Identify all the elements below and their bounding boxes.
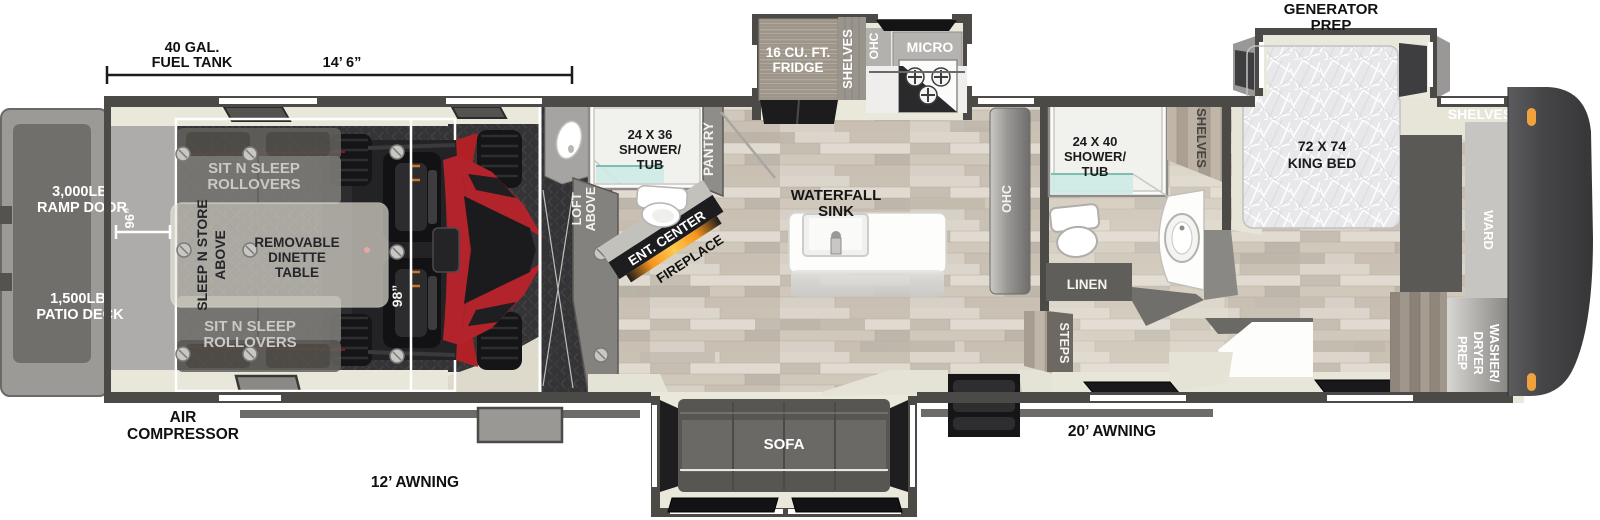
svg-text:ABOVE: ABOVE bbox=[584, 187, 598, 231]
svg-text:98”: 98” bbox=[389, 285, 405, 308]
svg-text:TABLE: TABLE bbox=[275, 265, 319, 280]
svg-text:DINETTE: DINETTE bbox=[268, 250, 326, 265]
svg-text:40 GAL.: 40 GAL. bbox=[165, 40, 220, 56]
svg-text:FRIDGE: FRIDGE bbox=[772, 60, 823, 75]
svg-text:FUEL TANK: FUEL TANK bbox=[152, 55, 233, 71]
svg-text:24 X 40: 24 X 40 bbox=[1073, 134, 1118, 149]
svg-text:SHOWER/: SHOWER/ bbox=[1064, 149, 1127, 164]
svg-text:SIT N SLEEP: SIT N SLEEP bbox=[204, 318, 296, 335]
svg-text:14’ 6”: 14’ 6” bbox=[323, 55, 362, 71]
svg-text:MICRO: MICRO bbox=[907, 39, 954, 55]
svg-text:24 X 36: 24 X 36 bbox=[628, 127, 673, 142]
svg-text:RAMP DOOR: RAMP DOOR bbox=[37, 200, 127, 216]
svg-text:SHOWER/: SHOWER/ bbox=[619, 142, 682, 157]
svg-text:STEPS: STEPS bbox=[1057, 323, 1071, 364]
svg-text:COMPRESSOR: COMPRESSOR bbox=[127, 426, 239, 443]
svg-text:OHC: OHC bbox=[867, 32, 881, 59]
svg-text:ABOVE: ABOVE bbox=[212, 230, 228, 280]
svg-text:16 CU. FT.: 16 CU. FT. bbox=[766, 45, 831, 60]
svg-text:WARD: WARD bbox=[1481, 210, 1496, 250]
svg-text:SHELVES: SHELVES bbox=[1448, 106, 1512, 122]
svg-text:SLEEP N STORE: SLEEP N STORE bbox=[194, 199, 210, 311]
svg-text:SOFA: SOFA bbox=[764, 436, 805, 453]
svg-text:SIT N SLEEP: SIT N SLEEP bbox=[208, 160, 300, 177]
svg-text:1,500LB.: 1,500LB. bbox=[50, 291, 110, 307]
svg-text:DRYER: DRYER bbox=[1471, 331, 1485, 374]
svg-text:12’ AWNING: 12’ AWNING bbox=[371, 474, 459, 491]
svg-text:GENERATOR: GENERATOR bbox=[1284, 1, 1379, 18]
svg-text:SHELVES: SHELVES bbox=[1194, 108, 1209, 168]
svg-text:TUB: TUB bbox=[1082, 164, 1109, 179]
svg-text:PREP: PREP bbox=[1311, 17, 1352, 34]
svg-text:SHELVES: SHELVES bbox=[840, 29, 855, 89]
svg-text:WASHER/: WASHER/ bbox=[1487, 324, 1501, 383]
svg-text:20’ AWNING: 20’ AWNING bbox=[1068, 423, 1156, 440]
svg-text:PANTRY: PANTRY bbox=[701, 122, 716, 176]
svg-text:ROLLOVERS: ROLLOVERS bbox=[207, 176, 300, 193]
svg-text:LINEN: LINEN bbox=[1067, 277, 1108, 292]
svg-text:PREP: PREP bbox=[1455, 336, 1469, 370]
svg-text:AIR: AIR bbox=[170, 409, 197, 426]
svg-text:SINK: SINK bbox=[818, 203, 854, 220]
svg-text:ROLLOVERS: ROLLOVERS bbox=[203, 334, 296, 351]
svg-text:REMOVABLE: REMOVABLE bbox=[254, 235, 339, 250]
svg-text:3,000LB.: 3,000LB. bbox=[52, 184, 112, 200]
svg-text:72 X 74: 72 X 74 bbox=[1298, 138, 1346, 154]
svg-text:KING BED: KING BED bbox=[1288, 155, 1356, 171]
svg-text:WATERFALL: WATERFALL bbox=[791, 187, 882, 204]
svg-text:OHC: OHC bbox=[1000, 185, 1014, 213]
svg-text:TUB: TUB bbox=[637, 157, 664, 172]
